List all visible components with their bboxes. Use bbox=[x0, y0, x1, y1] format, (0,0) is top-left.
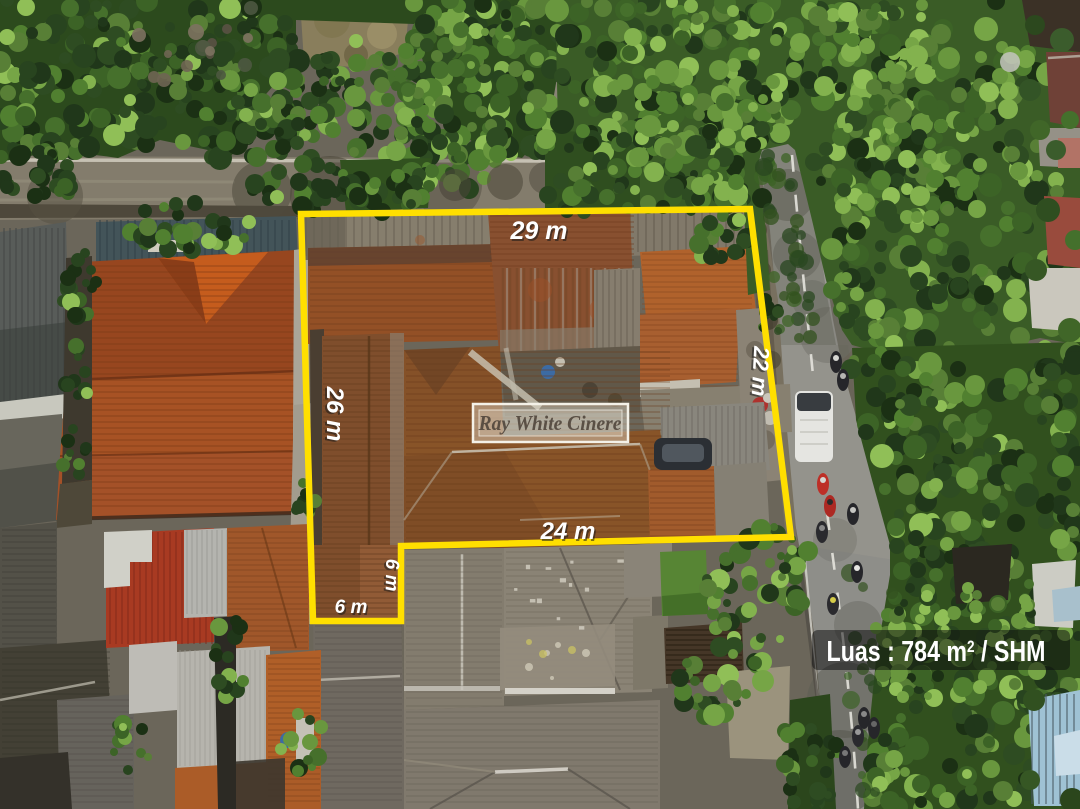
svg-text:Ray White Cinere: Ray White Cinere bbox=[478, 412, 622, 435]
svg-text:6 m: 6 m bbox=[381, 559, 403, 592]
svg-text:24 m: 24 m bbox=[540, 518, 596, 545]
svg-text:6 m: 6 m bbox=[335, 597, 368, 618]
svg-text:22 m: 22 m bbox=[747, 345, 775, 397]
svg-text:26 m: 26 m bbox=[321, 386, 348, 442]
svg-text:29 m: 29 m bbox=[510, 217, 568, 245]
svg-text:Luas : 784 m2 / SHM: Luas : 784 m2 / SHM bbox=[827, 634, 1046, 667]
